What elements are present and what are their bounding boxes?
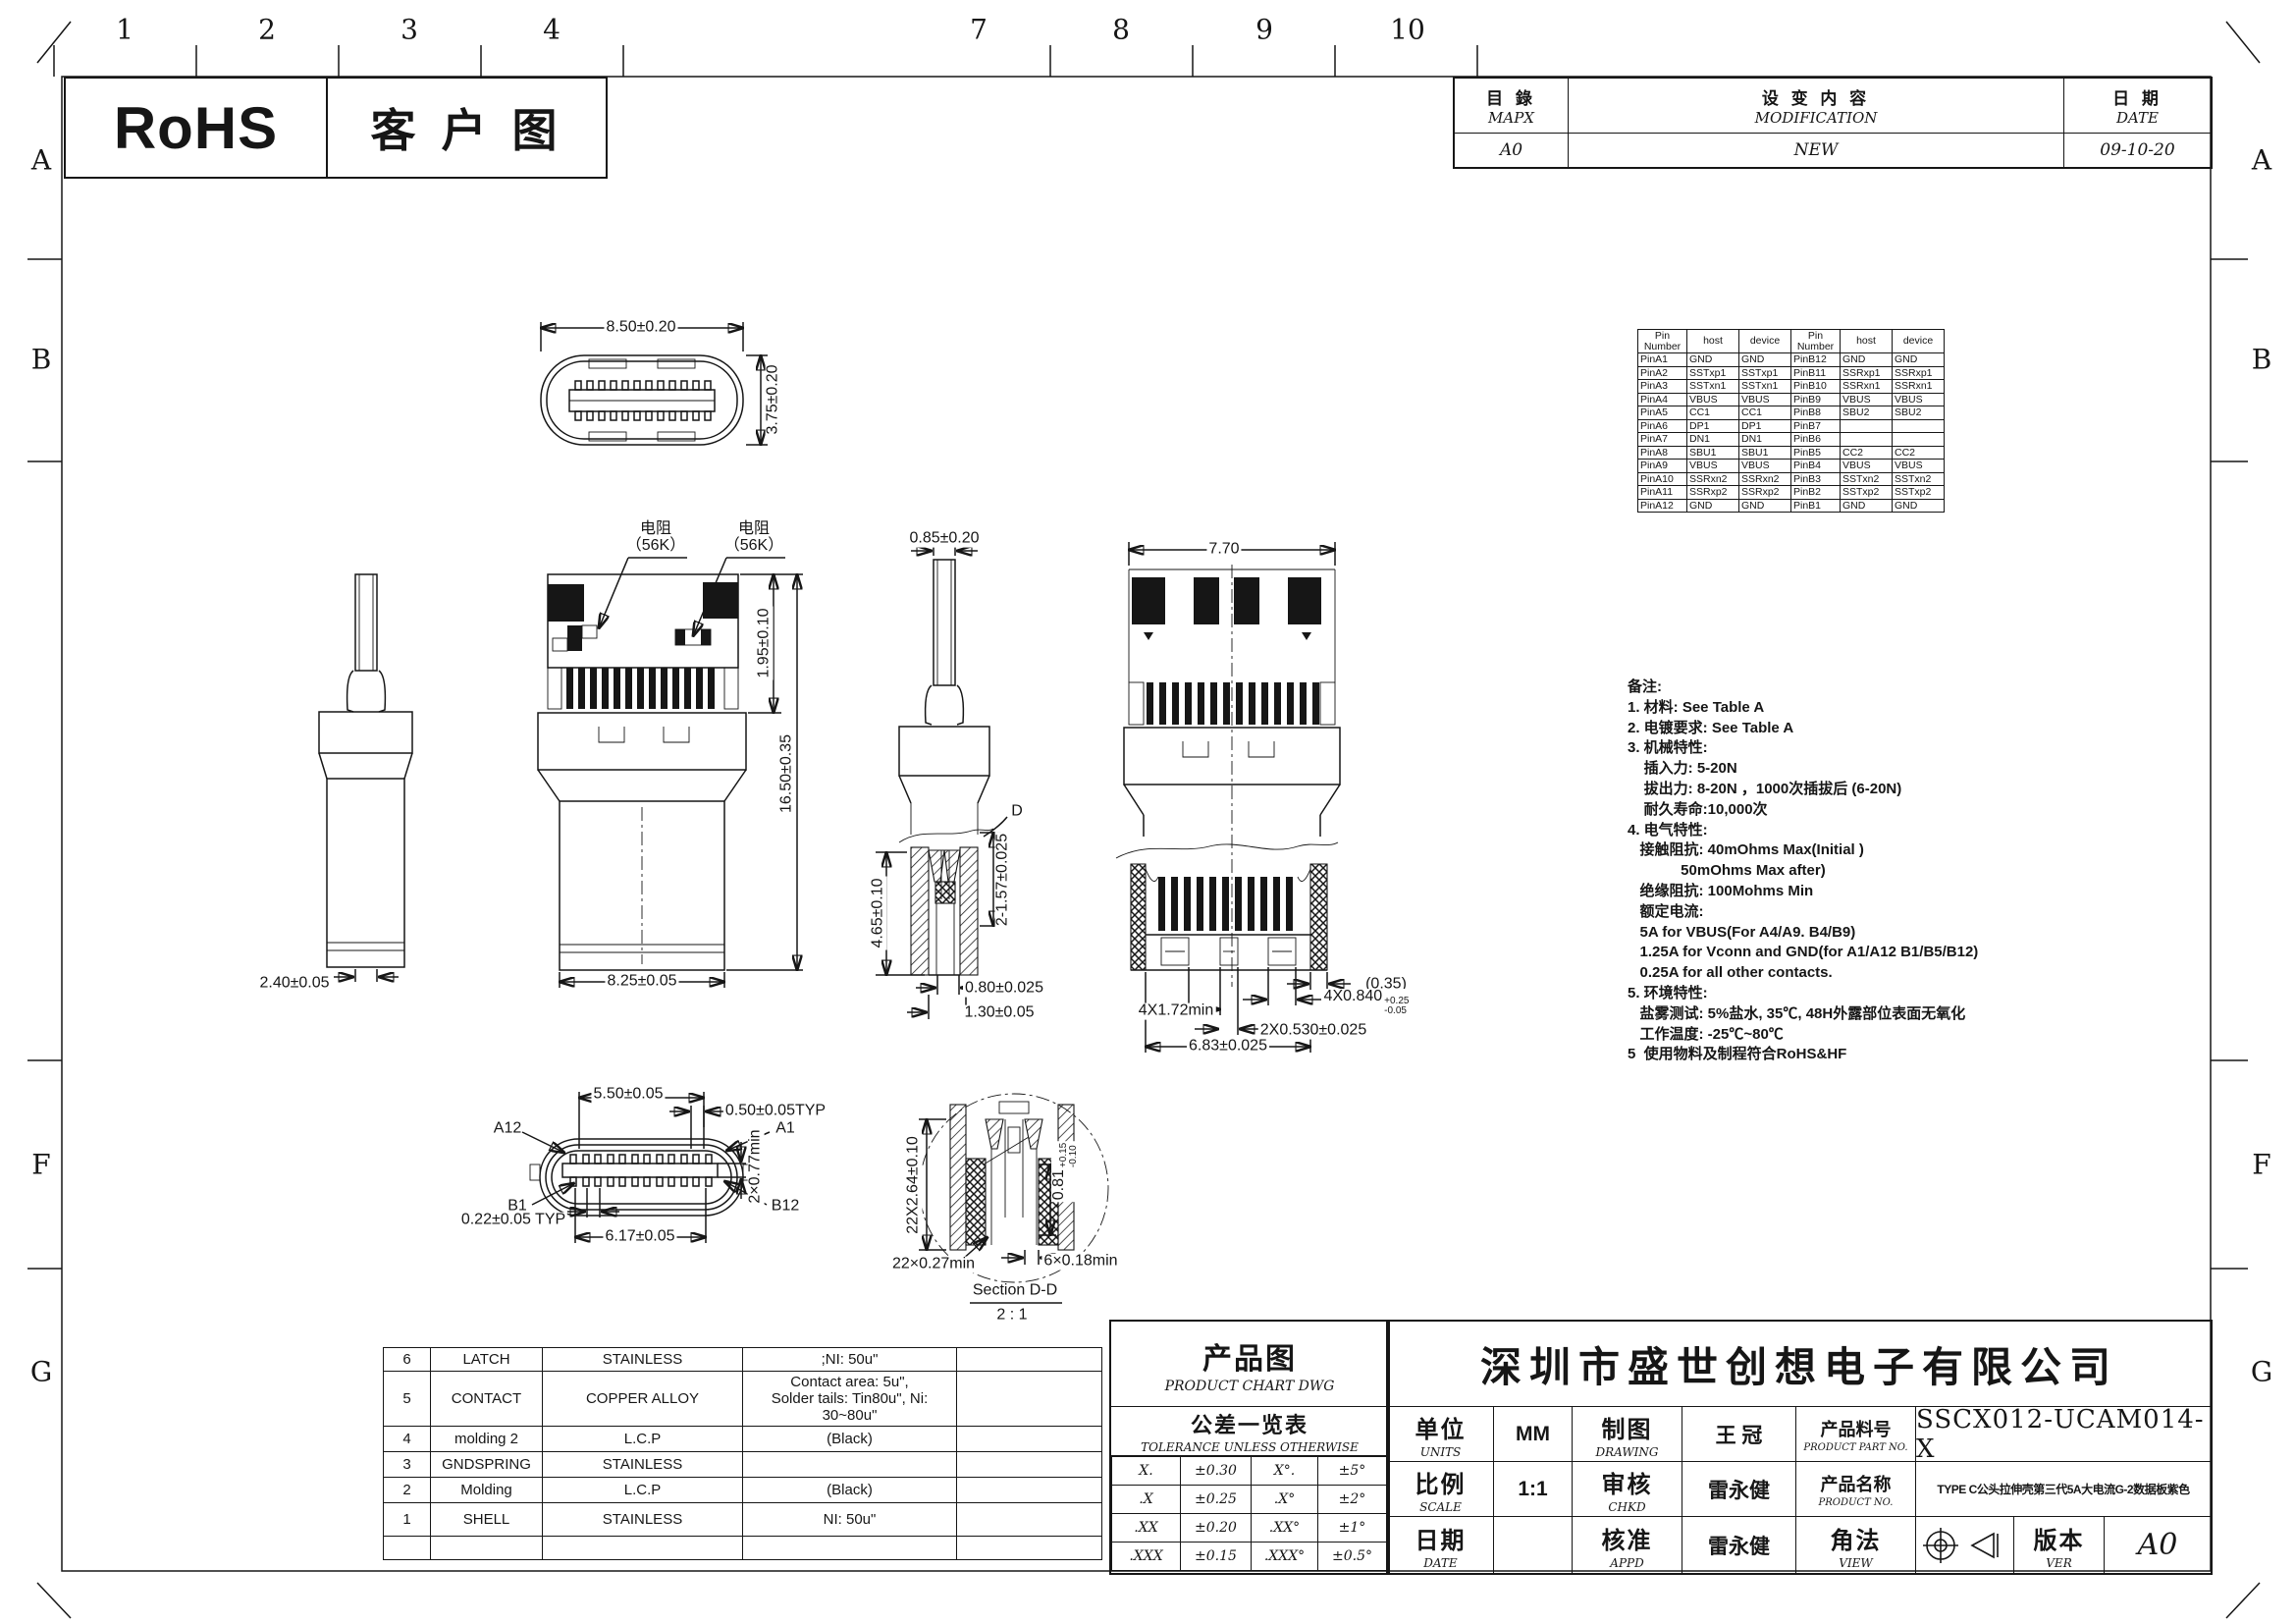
mod-header-en: MODIFICATION	[1755, 109, 1878, 127]
table-cell: .XXX	[1112, 1543, 1181, 1571]
table-cell: 5	[384, 1372, 431, 1427]
pin-table-header: host	[1687, 330, 1739, 353]
pin-position-label: A1	[774, 1121, 797, 1138]
resistor-callout: 电阻（56K）	[624, 521, 687, 555]
table-cell: PinA4	[1638, 393, 1687, 406]
table-cell: VBUS	[1893, 393, 1945, 406]
scale-value: 1:1	[1518, 1478, 1547, 1501]
note-line: 4. 电气特性:	[1628, 821, 2118, 841]
dimension-label: 4X0.840+0.25-0.05	[1322, 989, 1412, 1016]
note-line: 插入力: 5-20N	[1628, 759, 2118, 780]
table-cell: PinB5	[1791, 446, 1841, 460]
mod-col-header: 设 变 内 容MODIFICATION	[1568, 79, 2063, 133]
table-cell: CC2	[1893, 446, 1945, 460]
note-line: 拔出力: 8-20N ，1000次插拔后 (6-20N)	[1628, 780, 2118, 800]
table-cell: PinA7	[1638, 433, 1687, 447]
table-cell: 4	[384, 1427, 431, 1452]
ruler-letter: A	[2252, 144, 2271, 177]
ver-label-zh: 版本	[2034, 1521, 2085, 1555]
table-cell: SSTxp2	[1893, 486, 1945, 500]
dimension-label: 0.22±0.05 TYP	[459, 1213, 567, 1229]
resistor-callout: 电阻（56K）	[722, 521, 785, 555]
ruler-number: 2	[258, 14, 276, 46]
drawing-value-cell: 王 冠	[1682, 1407, 1796, 1462]
table-cell: .X	[1112, 1486, 1181, 1514]
table-row: PinA7DN1DN1PinB6	[1638, 433, 1945, 447]
table-cell: DP1	[1687, 419, 1739, 433]
table-cell: GND	[1893, 499, 1945, 513]
ver-value-cell: A0	[2105, 1517, 2211, 1573]
view-label-cell: 角法 VIEW	[1796, 1517, 1916, 1573]
dimension-label: 0.50±0.05TYP	[723, 1104, 828, 1120]
dimension-label: 22×0.27min	[890, 1257, 977, 1273]
table-cell: ±0.5°	[1318, 1543, 1387, 1571]
pin-table-header-row: Pin Number host device Pin Number host d…	[1638, 330, 1945, 353]
mod-date-value: 09-10-20	[2100, 140, 2174, 160]
table-cell	[384, 1537, 431, 1560]
table-cell: GND	[1739, 499, 1791, 513]
table-cell: X.	[1112, 1457, 1181, 1486]
table-cell: (Black)	[743, 1478, 957, 1503]
table-cell: ±0.30	[1181, 1457, 1252, 1486]
table-row: 4molding 2L.C.P(Black)	[384, 1427, 1102, 1452]
dimension-label: 7.70	[1206, 542, 1241, 559]
dimension-label: 0.80±0.025	[963, 981, 1045, 998]
table-cell	[957, 1452, 1102, 1478]
mod-header-zh: 目 錄	[1486, 84, 1536, 109]
table-cell	[957, 1348, 1102, 1372]
product-name-label-cell: 产品名称 PRODUCT NO.	[1796, 1462, 1916, 1517]
note-line: 耐久寿命:10,000次	[1628, 800, 2118, 821]
drawing-label-cell: 制图 DRAWING	[1573, 1407, 1682, 1462]
table-row: 2MoldingL.C.P(Black)	[384, 1478, 1102, 1503]
table-row: PinA5CC1CC1PinB8SBU2SBU2	[1638, 406, 1945, 420]
table-row: 1SHELLSTAINLESSNI: 50u"	[384, 1503, 1102, 1537]
dimension-label: 5.50±0.05	[591, 1087, 665, 1104]
scale-label-en: SCALE	[1419, 1500, 1462, 1514]
table-cell: SBU2	[1893, 406, 1945, 420]
customer-drawing-title: 客户图	[328, 79, 606, 177]
pin-table-header: host	[1841, 330, 1893, 353]
table-row	[384, 1537, 1102, 1560]
table-cell: ±0.15	[1181, 1543, 1252, 1571]
dimension-label: 22X2.64±0.10	[906, 1134, 923, 1236]
table-cell: PinA8	[1638, 446, 1687, 460]
table-cell: PinA1	[1638, 353, 1687, 367]
mod-header-zh: 日 期	[2112, 84, 2163, 109]
table-cell: 1	[384, 1503, 431, 1537]
table-cell: PinB1	[1791, 499, 1841, 513]
rohs-logo: RoHS	[66, 79, 328, 177]
table-row: PinA3SSTxn1SSTxn1PinB10SSRxn1SSRxn1	[1638, 380, 1945, 394]
scale-label-zh: 比例	[1415, 1465, 1467, 1499]
table-cell: SSTxn1	[1739, 380, 1791, 394]
table-cell: PinB12	[1791, 353, 1841, 367]
table-cell: L.C.P	[543, 1427, 743, 1452]
product-chart-title-zh: 产品图	[1202, 1334, 1297, 1378]
chkd-label-en: CHKD	[1608, 1500, 1645, 1514]
note-line: 5A for VBUS(For A4/A9. B4/B9)	[1628, 923, 2118, 944]
note-line: 5. 环境特性:	[1628, 984, 2118, 1004]
note-line: 3. 机械特性:	[1628, 738, 2118, 759]
dimension-label: 0.85±0.20	[907, 531, 981, 548]
units-label-en: UNITS	[1420, 1445, 1462, 1459]
view-front-2	[1124, 542, 1340, 987]
appd-label-cell: 核准 APPD	[1573, 1517, 1682, 1573]
table-cell: molding 2	[431, 1427, 543, 1452]
chkd-value-cell: 雷永健	[1682, 1462, 1796, 1517]
table-cell: SSRxn1	[1841, 380, 1893, 394]
table-cell: GND	[1893, 353, 1945, 367]
parts-table-body: 6LATCHSTAINLESS;NI: 50u"5CONTACTCOPPER A…	[384, 1348, 1102, 1560]
table-cell: .X°	[1252, 1486, 1318, 1514]
ruler-letter: G	[2251, 1356, 2272, 1388]
part-no-label-en: PRODUCT PART NO.	[1803, 1442, 1907, 1453]
approved-by-name: 雷永健	[1708, 1531, 1770, 1560]
dimension-label: 1.95±0.10	[757, 606, 774, 679]
table-cell: PinB4	[1791, 460, 1841, 473]
view-label-en: VIEW	[1839, 1556, 1873, 1570]
table-cell: PinB7	[1791, 419, 1841, 433]
table-cell: SSTxp1	[1739, 366, 1791, 380]
chkd-label-cell: 审核 CHKD	[1573, 1462, 1682, 1517]
ruler-letter: F	[2252, 1149, 2270, 1181]
date-label-zh: 日期	[1415, 1521, 1467, 1555]
note-line: 接触阻抗: 40mOhms Max(Initial )	[1628, 840, 2118, 861]
dimension-label: 0.81+0.15-0.10	[1051, 1141, 1079, 1202]
ver-label-en: VER	[2046, 1556, 2071, 1570]
resistor-value: （56K）	[724, 538, 783, 555]
date-label-cell: 日期 DATE	[1388, 1517, 1494, 1573]
table-row: 5CONTACTCOPPER ALLOYContact area: 5u", S…	[384, 1372, 1102, 1427]
dimension-label: 6.83±0.025	[1187, 1039, 1269, 1056]
product-chart-title-en: PRODUCT CHART DWG	[1165, 1379, 1335, 1394]
mod-modification-value: NEW	[1794, 140, 1839, 160]
units-value: MM	[1516, 1423, 1550, 1446]
third-angle-projection-icon	[1923, 1526, 2007, 1565]
table-row: .XXX±0.15.XXX°±0.5°	[1112, 1543, 1387, 1571]
technical-notes: 备注:1. 材料: See Table A2. 电镀要求: See Table …	[1628, 677, 2118, 1065]
table-cell	[1893, 419, 1945, 433]
table-row: 6LATCHSTAINLESS;NI: 50u"	[384, 1348, 1102, 1372]
tolerance-table: X.±0.30X°.±5°.X±0.25.X°±2°.XX±0.20.XX°±1…	[1111, 1456, 1387, 1571]
table-row: 3GNDSPRINGSTAINLESS	[384, 1452, 1102, 1478]
ruler-number: 10	[1390, 14, 1425, 46]
mod-mapx-value: A0	[1500, 140, 1522, 160]
dimension-label: 16.50±0.35	[779, 732, 796, 815]
pin-position-label: B12	[770, 1199, 801, 1216]
table-cell: PinA9	[1638, 460, 1687, 473]
tolerance-title-en: TOLERANCE UNLESS OTHERWISE	[1141, 1440, 1359, 1454]
dim-lower-tol: -0.10	[1069, 1143, 1079, 1167]
note-line: 工作温度: -25℃~80℃	[1628, 1025, 2118, 1046]
table-cell: STAINLESS	[543, 1452, 743, 1478]
table-cell: SBU1	[1687, 446, 1739, 460]
table-cell	[957, 1537, 1102, 1560]
dimension-label: 6×0.18min	[1041, 1254, 1119, 1271]
appd-value-cell: 雷永健	[1682, 1517, 1796, 1573]
dimension-label: 3.75±0.20	[766, 362, 782, 436]
drawing-label-en: DRAWING	[1596, 1445, 1659, 1459]
company-name: 深圳市盛世创想电子有限公司	[1480, 1334, 2118, 1394]
dimension-label: 2.40±0.05	[257, 976, 331, 993]
dimension-label: 2-1.57±0.025	[995, 832, 1012, 928]
table-cell	[957, 1478, 1102, 1503]
note-line: 1.25A for Vconn and GND(for A1/A12 B1/B5…	[1628, 943, 2118, 963]
table-row: PinA9VBUSVBUSPinB4VBUSVBUS	[1638, 460, 1945, 473]
part-no-label-cell: 产品料号 PRODUCT PART NO.	[1796, 1407, 1916, 1462]
table-cell: Molding	[431, 1478, 543, 1503]
table-row: PinA10SSRxn2SSRxn2PinB3SSTxn2SSTxn2	[1638, 472, 1945, 486]
table-cell: 2	[384, 1478, 431, 1503]
table-cell	[431, 1537, 543, 1560]
table-cell: SSTxp1	[1687, 366, 1739, 380]
table-row: PinA1GNDGNDPinB12GNDGND	[1638, 353, 1945, 367]
table-cell: VBUS	[1739, 393, 1791, 406]
table-cell: L.C.P	[543, 1478, 743, 1503]
table-row: PinA8SBU1SBU1PinB5CC2CC2	[1638, 446, 1945, 460]
detail-callout-label: D	[1009, 804, 1025, 821]
units-value-cell: MM	[1494, 1407, 1573, 1462]
table-cell: ±0.20	[1181, 1514, 1252, 1543]
modification-table: 目 錄MAPX 设 变 内 容MODIFICATION 日 期DATE A0 N…	[1453, 77, 2213, 169]
ruler-number: 4	[543, 14, 561, 46]
table-cell: CC1	[1739, 406, 1791, 420]
table-cell: .XX°	[1252, 1514, 1318, 1543]
product-name-label-zh: 产品名称	[1821, 1471, 1892, 1496]
dimension-label: 8.50±0.20	[604, 320, 677, 337]
table-cell: PinA5	[1638, 406, 1687, 420]
projection-symbol-cell	[1916, 1517, 2014, 1573]
table-row: .X±0.25.X°±2°	[1112, 1486, 1387, 1514]
table-cell	[1841, 433, 1893, 447]
table-cell: Contact area: 5u", Solder tails: Tin80u"…	[743, 1372, 957, 1427]
tolerance-title-cell: 公差一览表 TOLERANCE UNLESS OTHERWISE	[1111, 1407, 1388, 1456]
pin-table-header: device	[1893, 330, 1945, 353]
ruler-letter: F	[31, 1149, 50, 1181]
table-cell	[957, 1503, 1102, 1537]
table-cell: GNDSPRING	[431, 1452, 543, 1478]
table-cell	[1841, 419, 1893, 433]
table-cell: SSTxn1	[1687, 380, 1739, 394]
pin-table-header: Pin Number	[1791, 330, 1841, 353]
table-cell: ±1°	[1318, 1514, 1387, 1543]
tolerance-block: 产品图 PRODUCT CHART DWG 公差一览表 TOLERANCE UN…	[1109, 1320, 1390, 1575]
table-cell: PinB9	[1791, 393, 1841, 406]
product-name-value-cell: TYPE C公头拉伸壳第三代5A大电流G-2数据板紫色	[1916, 1462, 2211, 1517]
table-cell: .XX	[1112, 1514, 1181, 1543]
ruler-number: 3	[400, 14, 418, 46]
tolerance-table-body: X.±0.30X°.±5°.X±0.25.X°±2°.XX±0.20.XX°±1…	[1112, 1457, 1387, 1571]
mod-col-header: 目 錄MAPX	[1455, 79, 1568, 133]
table-row: PinA11SSRxp2SSRxp2PinB2SSTxp2SSTxp2	[1638, 486, 1945, 500]
view-label-zh: 角法	[1831, 1521, 1882, 1555]
table-cell: SSRxn2	[1739, 472, 1791, 486]
drawing-by-name: 王 冠	[1716, 1420, 1763, 1449]
table-cell: GND	[1841, 499, 1893, 513]
dimension-label: 2X0.530±0.025	[1258, 1023, 1368, 1040]
version-value: A0	[2138, 1528, 2178, 1562]
section-title: Section D-D	[971, 1283, 1059, 1300]
table-cell: SSTxn2	[1893, 472, 1945, 486]
table-cell: VBUS	[1841, 393, 1893, 406]
mod-col-header: 日 期DATE	[2063, 79, 2211, 133]
table-row: PinA12GNDGNDPinB1GNDGND	[1638, 499, 1945, 513]
table-cell: GND	[1841, 353, 1893, 367]
date-label-en: DATE	[1423, 1556, 1457, 1570]
tolerance-title-zh: 公差一览表	[1191, 1408, 1308, 1439]
table-cell: SSTxn2	[1841, 472, 1893, 486]
dimension-label: 4X1.72min	[1137, 1003, 1216, 1020]
table-cell: SSRxp1	[1841, 366, 1893, 380]
dim-main: 0.81	[1050, 1169, 1067, 1200]
table-cell: GND	[1739, 353, 1791, 367]
checked-by-name: 雷永健	[1708, 1475, 1770, 1504]
table-cell: SHELL	[431, 1503, 543, 1537]
table-cell: (Black)	[743, 1427, 957, 1452]
dimension-label: 2×0.77min	[748, 1127, 765, 1205]
table-cell: SBU2	[1841, 406, 1893, 420]
note-line: 绝缘阻抗: 100Mohms Min	[1628, 882, 2118, 902]
table-cell: DN1	[1739, 433, 1791, 447]
product-name: TYPE C公头拉伸壳第三代5A大电流G-2数据板紫色	[1937, 1481, 2189, 1497]
table-cell: STAINLESS	[543, 1503, 743, 1537]
table-row: .XX±0.20.XX°±1°	[1112, 1514, 1387, 1543]
table-row: PinA4VBUSVBUSPinB9VBUSVBUS	[1638, 393, 1945, 406]
note-line: 1. 材料: See Table A	[1628, 698, 2118, 719]
ruler-number: 9	[1255, 14, 1273, 46]
table-cell: SSRxn2	[1687, 472, 1739, 486]
table-cell	[1893, 433, 1945, 447]
part-no-label-zh: 产品料号	[1821, 1416, 1892, 1441]
pin-table-header: Pin Number	[1638, 330, 1687, 353]
table-cell: STAINLESS	[543, 1348, 743, 1372]
chkd-label-zh: 审核	[1602, 1465, 1653, 1499]
table-row: X.±0.30X°.±5°	[1112, 1457, 1387, 1486]
mod-header-en: DATE	[2116, 109, 2159, 127]
table-cell: SSRxn1	[1893, 380, 1945, 394]
part-number: SSCX012-UCAM014-X	[1916, 1407, 2211, 1462]
view-profile-with-section	[876, 546, 1007, 1019]
table-cell: SSRxp2	[1739, 486, 1791, 500]
ruler-letter: B	[31, 344, 52, 376]
table-cell: VBUS	[1893, 460, 1945, 473]
table-cell: CC2	[1841, 446, 1893, 460]
table-cell: ±0.25	[1181, 1486, 1252, 1514]
dimension-label: 6.17±0.05	[603, 1229, 676, 1246]
table-cell: PinB8	[1791, 406, 1841, 420]
title-block: 深圳市盛世创想电子有限公司 单位 UNITS MM 制图 DRAWING 王 冠…	[1386, 1320, 2213, 1575]
note-line: 2. 电镀要求: See Table A	[1628, 719, 2118, 739]
appd-label-zh: 核准	[1602, 1521, 1653, 1555]
table-cell: PinA10	[1638, 472, 1687, 486]
table-cell: VBUS	[1841, 460, 1893, 473]
table-cell	[743, 1537, 957, 1560]
table-cell: PinA12	[1638, 499, 1687, 513]
table-cell: .XXX°	[1252, 1543, 1318, 1571]
company-name-cell: 深圳市盛世创想电子有限公司	[1388, 1322, 2211, 1407]
table-cell	[543, 1537, 743, 1560]
dimension-label: 4.65±0.10	[871, 876, 887, 949]
ruler-letter: B	[2252, 344, 2272, 376]
section-scale: 2 : 1	[994, 1308, 1029, 1325]
ver-label-cell: 版本 VER	[2014, 1517, 2105, 1573]
table-cell	[743, 1452, 957, 1478]
ruler-number: 1	[116, 14, 133, 46]
table-cell: ±2°	[1318, 1486, 1387, 1514]
table-row: PinA6DP1DP1PinB7	[1638, 419, 1945, 433]
pin-position-label: A12	[492, 1121, 523, 1138]
note-line: 盐雾测试: 5%盐水, 35℃, 48H外露部位表面无氧化	[1628, 1004, 2118, 1025]
scale-label-cell: 比例 SCALE	[1388, 1462, 1494, 1517]
table-cell: PinB2	[1791, 486, 1841, 500]
part-no-value-cell: SSCX012-UCAM014-X	[1916, 1407, 2211, 1462]
table-cell: DN1	[1687, 433, 1739, 447]
table-cell	[957, 1372, 1102, 1427]
dimension-label: 1.30±0.05	[962, 1005, 1036, 1022]
table-cell: SSTxp2	[1841, 486, 1893, 500]
mod-value: 09-10-20	[2063, 133, 2211, 167]
table-cell: PinA3	[1638, 380, 1687, 394]
table-cell: SSRxp2	[1687, 486, 1739, 500]
table-cell: PinB3	[1791, 472, 1841, 486]
view-plug-face-top	[541, 322, 768, 445]
scale-value-cell: 1:1	[1494, 1462, 1573, 1517]
ruler-number: 7	[970, 14, 988, 46]
table-cell: X°.	[1252, 1457, 1318, 1486]
dim-main: 4X0.840	[1324, 988, 1383, 1004]
ruler-letter: A	[31, 144, 51, 177]
sheet-header-box: RoHS 客户图	[64, 77, 608, 179]
table-cell: NI: 50u"	[743, 1503, 957, 1537]
date-value-cell	[1494, 1517, 1573, 1573]
dimension-label: 8.25±0.05	[605, 974, 678, 991]
table-cell: DP1	[1739, 419, 1791, 433]
table-cell: PinB6	[1791, 433, 1841, 447]
note-line: 0.25A for all other contacts.	[1628, 963, 2118, 984]
table-cell: SSRxp1	[1893, 366, 1945, 380]
pin-table-header: device	[1739, 330, 1791, 353]
mod-header-en: MAPX	[1488, 109, 1534, 127]
table-cell: GND	[1687, 499, 1739, 513]
table-cell: 3	[384, 1452, 431, 1478]
table-cell	[957, 1427, 1102, 1452]
table-cell: CC1	[1687, 406, 1739, 420]
note-line: 5 使用物料及制程符合RoHS&HF	[1628, 1045, 2118, 1065]
units-label-cell: 单位 UNITS	[1388, 1407, 1494, 1462]
table-cell: SBU1	[1739, 446, 1791, 460]
product-name-label-en: PRODUCT NO.	[1819, 1497, 1894, 1508]
product-chart-cell: 产品图 PRODUCT CHART DWG	[1111, 1322, 1388, 1407]
note-line: 额定电流:	[1628, 902, 2118, 923]
table-cell: PinA6	[1638, 419, 1687, 433]
table-cell: LATCH	[431, 1348, 543, 1372]
table-cell: PinB10	[1791, 380, 1841, 394]
engineering-drawing-sheet: 1 2 3 4 7 8 9 10 A B F G A B F G RoHS 客户…	[0, 0, 2296, 1624]
table-cell: PinA11	[1638, 486, 1687, 500]
appd-label-en: APPD	[1610, 1556, 1643, 1570]
table-cell: COPPER ALLOY	[543, 1372, 743, 1427]
table-cell: VBUS	[1687, 393, 1739, 406]
table-cell: GND	[1687, 353, 1739, 367]
table-cell: VBUS	[1687, 460, 1739, 473]
table-cell: CONTACT	[431, 1372, 543, 1427]
table-row: PinA2SSTxp1SSTxp1PinB11SSRxp1SSRxp1	[1638, 366, 1945, 380]
resistor-value: （56K）	[626, 538, 685, 555]
mod-header-zh: 设 变 内 容	[1762, 84, 1870, 109]
ruler-letter: G	[30, 1356, 52, 1388]
note-line: 备注:	[1628, 677, 2118, 698]
